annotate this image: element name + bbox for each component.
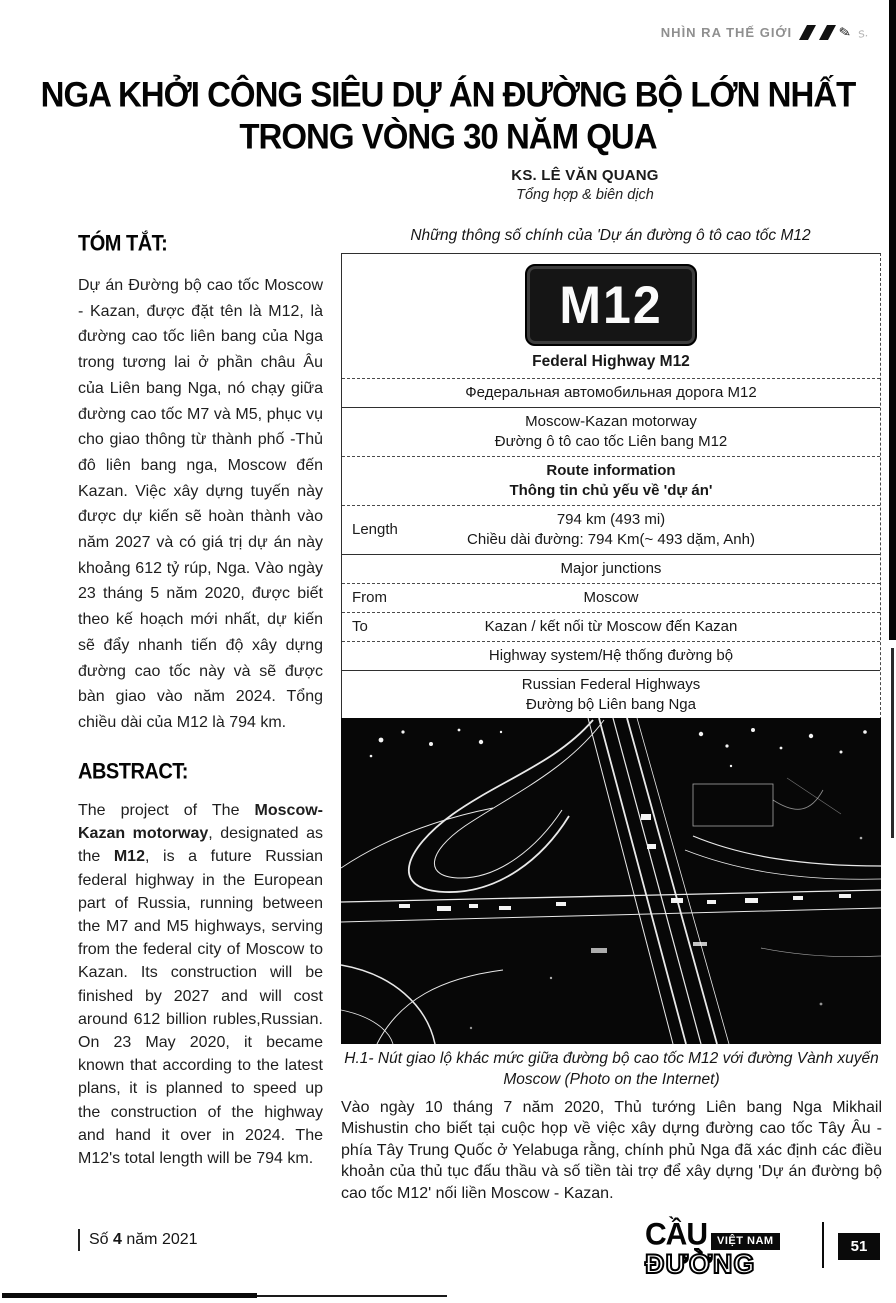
- figure-caption: H.1- Nút giao lộ khác mức giữa đường bộ …: [341, 1048, 882, 1090]
- infobox-row-to: To Kazan / kết nối từ Moscow đến Kazan: [342, 612, 880, 641]
- scan-edge-artifact-tail: [891, 648, 894, 838]
- issue-suffix: năm 2021: [122, 1231, 198, 1248]
- motorway-name-en: Moscow-Kazan motorway: [348, 412, 874, 432]
- infobox-row-badge: M12 Federal Highway M12: [342, 254, 880, 378]
- system-value-vi: Đường bộ Liên bang Nga: [348, 695, 874, 715]
- footer-issue: Số 4 năm 2021: [78, 1229, 198, 1251]
- abstract-seg: , is a future Russian federal highway in…: [78, 848, 323, 1167]
- author-name: KS. LÊ VĂN QUANG: [455, 167, 715, 184]
- from-label: From: [352, 588, 387, 608]
- abstract-bold-m12: M12: [114, 848, 145, 865]
- aerial-interchange-photo: [341, 718, 881, 1044]
- summary-section: TÓM TẮT: Dự án Đường bộ cao tốc Moscow -…: [78, 232, 323, 736]
- page-header: NHÌN RA THẾ GIỚI ✎ s.: [661, 24, 868, 41]
- logo-cau-text: CẦU: [645, 1219, 707, 1251]
- abstract-seg: The project of The: [78, 802, 255, 819]
- magazine-page: NHÌN RA THẾ GIỚI ✎ s. NGA KHỞI CÔNG SIÊU…: [0, 0, 896, 1303]
- infobox-row-length: Length 794 km (493 mi) Chiều dài đường: …: [342, 505, 880, 554]
- infobox-row-major-junctions: Major junctions: [342, 554, 880, 583]
- pen-icon: ✎: [838, 23, 853, 42]
- slash-icon: [799, 25, 816, 40]
- system-value-en: Russian Federal Highways: [348, 675, 874, 695]
- motorway-name-vi: Đường ô tô cao tốc Liên bang M12: [348, 432, 874, 452]
- length-label: Length: [352, 520, 398, 540]
- infobox-row-from: From Moscow: [342, 583, 880, 612]
- infobox-row-russian-name: Федеральная автомобильная дорога М12: [342, 378, 880, 407]
- article-title-line2: TRONG VÒNG 30 NĂM QUA: [239, 116, 656, 156]
- to-label: To: [352, 617, 368, 637]
- summary-heading: TÓM TẮT:: [78, 232, 323, 257]
- section-label: NHÌN RA THẾ GIỚI: [661, 25, 792, 40]
- logo-top-row: CẦU VIỆT NAM: [645, 1220, 810, 1250]
- infobox-row-federal-highways: Russian Federal Highways Đường bộ Liên b…: [342, 670, 880, 719]
- length-value-en: 794 km (493 mi): [348, 510, 874, 530]
- abstract-heading: ABSTRACT:: [78, 760, 323, 785]
- scan-bottom-line: [2, 1293, 257, 1298]
- m12-highway-shield: M12: [525, 264, 697, 346]
- from-value: Moscow: [348, 588, 874, 608]
- slash-icon: [819, 25, 836, 40]
- route-info-vi: Thông tin chủ yếu về 'dự án': [348, 481, 874, 501]
- m12-shield-text: M12: [559, 295, 662, 316]
- length-value-vi: Chiều dài đường: 794 Km(~ 493 dặm, Anh): [348, 530, 874, 550]
- abstract-section: ABSTRACT: The project of The Moscow-Kaza…: [78, 760, 323, 1170]
- infobox-row-highway-system: Highway system/Hệ thống đường bộ: [342, 641, 880, 670]
- cau-duong-vietnam-logo: CẦU VIỆT NAM ĐƯỜNG: [645, 1220, 810, 1278]
- author-role: Tổng hợp & biên dịch: [455, 187, 715, 203]
- issue-number: 4: [113, 1231, 122, 1248]
- badge-label: Federal Highway M12: [342, 352, 880, 372]
- infobox-row-route-information: Route information Thông tin chủ yếu về '…: [342, 456, 880, 505]
- logo-vietnam-badge: VIỆT NAM: [711, 1233, 780, 1250]
- logo-duong-text: ĐƯỜNG: [645, 1251, 810, 1278]
- footer-divider: [822, 1222, 824, 1268]
- interchange-photo-graphic: [341, 718, 881, 1044]
- author-block: KS. LÊ VĂN QUANG Tổng hợp & biên dịch: [455, 167, 715, 203]
- infobox-caption: Những thông số chính của 'Dự án đường ô …: [340, 227, 881, 245]
- page-number-badge: 51: [838, 1233, 880, 1260]
- article-title-line1: NGA KHỞI CÔNG SIÊU DỰ ÁN ĐƯỜNG BỘ LỚN NH…: [41, 74, 856, 114]
- to-value: Kazan / kết nối từ Moscow đến Kazan: [348, 617, 874, 637]
- highway-infobox-table: M12 Federal Highway M12 Федеральная авто…: [341, 253, 881, 720]
- scan-bottom-line-thin: [257, 1295, 447, 1297]
- body-paragraph: Vào ngày 10 tháng 7 năm 2020, Thủ tướng …: [341, 1097, 882, 1204]
- article-title: NGA KHỞI CÔNG SIÊU DỰ ÁN ĐƯỜNG BỘ LỚN NH…: [0, 73, 896, 157]
- issue-prefix: Số: [89, 1231, 113, 1248]
- route-info-en: Route information: [348, 461, 874, 481]
- infobox-row-motorway-name: Moscow-Kazan motorway Đường ô tô cao tốc…: [342, 407, 880, 456]
- summary-body: Dự án Đường bộ cao tốc Moscow - Kazan, đ…: [78, 273, 323, 736]
- signature-scribble-icon: s.: [856, 24, 869, 41]
- abstract-body: The project of The Moscow-Kazan motorway…: [78, 799, 323, 1170]
